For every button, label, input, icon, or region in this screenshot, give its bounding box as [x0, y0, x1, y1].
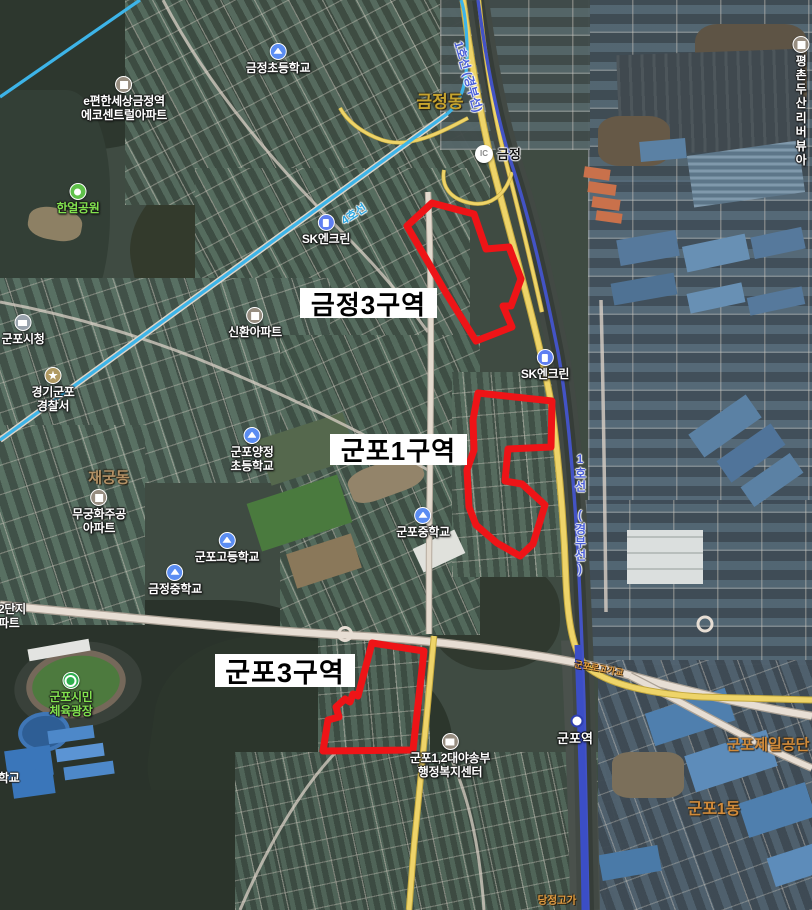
poi-label: 군포고등학교 — [195, 550, 259, 564]
gas-pump-icon[interactable] — [536, 349, 553, 366]
building-icon[interactable] — [115, 76, 132, 93]
poi-label: 군포시청 — [2, 332, 45, 346]
district-jaegungdong: 재궁동 — [88, 467, 129, 488]
poi-gunpo-highschool[interactable]: 군포고등학교 — [195, 532, 259, 564]
poi-pyeongchon-dusan-riverview[interactable]: 평촌두산 리버뷰아 — [793, 36, 810, 167]
school-icon[interactable] — [414, 507, 431, 524]
poi-sk-encrean-south[interactable]: SK엔크린 — [521, 349, 569, 381]
poi-gunpo-yangjeong-elementary[interactable]: 군포양정 초등학교 — [231, 427, 274, 473]
stadium-icon[interactable] — [63, 672, 80, 689]
poi-label: 군포1,2대야송부 행정복지센터 — [410, 751, 490, 779]
zone-label-gunpo1: 군포1구역 — [330, 434, 467, 465]
community-center-icon[interactable] — [441, 733, 458, 750]
district-geumjeongdong: 금정동 — [417, 88, 464, 113]
poi-epyeonhansesang-apartment[interactable]: e편한세상금정역 에코센트럴아파트 — [81, 76, 167, 122]
poi-label: SK엔크린 — [302, 232, 350, 246]
poi-label: 무궁화주공 아파트 — [72, 507, 126, 535]
school-icon[interactable] — [244, 427, 261, 444]
poi-gunpo-community-center[interactable]: 군포1,2대야송부 행정복지센터 — [410, 733, 490, 779]
poi-mugunghwa-jugong-apartment[interactable]: 무궁화주공 아파트 — [72, 489, 126, 535]
school-icon[interactable] — [269, 43, 286, 60]
poi-label: 금정초등학교 — [246, 61, 310, 75]
building-icon[interactable] — [793, 36, 810, 53]
poi-shinhwan-apartment[interactable]: 신환아파트 — [228, 307, 282, 339]
poi-gyeonggi-gunpo-police[interactable]: 경기군포 경찰서 — [32, 367, 75, 413]
poi-label: 군포중학교 — [396, 525, 450, 539]
poi-label: 신환아파트 — [228, 325, 282, 339]
street — [601, 300, 606, 612]
poi-label: SK엔크린 — [521, 367, 569, 381]
building-icon[interactable] — [90, 489, 107, 506]
interchange-geumjeong[interactable]: IC 금정 — [475, 144, 521, 163]
poi-label: e편한세상금정역 에코센트럴아파트 — [81, 94, 167, 122]
poi-label: 군포시민 체육광장 — [50, 690, 93, 718]
school-icon[interactable] — [166, 564, 183, 581]
interchange-name: 금정 — [497, 144, 521, 163]
poi-geumjeong-elementary[interactable]: 금정초등학교 — [246, 43, 310, 75]
poi-label: 한얼공원 — [57, 201, 100, 215]
poi-sk-encrean-north[interactable]: SK엔크린 — [302, 214, 350, 246]
gas-pump-icon[interactable] — [317, 214, 334, 231]
district-gunpo1dong: 군포1동 — [687, 795, 740, 819]
poi-gunpo-middle-school[interactable]: 군포중학교 — [396, 507, 450, 539]
poi-label: 금정중학교 — [148, 582, 202, 596]
red-zone-gunpo1 — [467, 393, 552, 556]
poi-gunpo-cityhall[interactable]: 군포시청 — [2, 314, 45, 346]
yellow-road-main-casing — [463, 0, 812, 700]
poi-label: 경기군포 경찰서 — [32, 385, 75, 413]
building-icon[interactable] — [246, 307, 263, 324]
roundabout — [698, 617, 712, 631]
poi-geumjeong-middle-school[interactable]: 금정중학교 — [148, 564, 202, 596]
map-canvas[interactable]: 금정3구역 군포1구역 군포3구역 금정초등학교 e편한세상금정역 에코센트럴아… — [0, 0, 812, 910]
station-label-gunpo[interactable]: 군포역 — [557, 728, 593, 747]
zone-label-gunpo3: 군포3구역 — [215, 654, 355, 687]
zone-label-geumjeong3: 금정3구역 — [300, 288, 437, 318]
poi-label: 군포양정 초등학교 — [231, 445, 274, 473]
yellow-road-main — [463, 0, 812, 700]
school-icon[interactable] — [218, 532, 235, 549]
interchange-icon: IC — [475, 145, 493, 163]
station-marker-gunpo[interactable] — [572, 716, 583, 727]
poi-gunpo-sports-plaza[interactable]: 군포시민 체육광장 — [50, 672, 93, 718]
poi-label: 평촌두산 리버뷰아 — [793, 54, 810, 167]
street — [240, 752, 336, 910]
government-building-icon[interactable] — [15, 314, 32, 331]
district-gunpo-jeil-industrial: 군포제일공단 — [727, 734, 810, 755]
police-badge-icon[interactable] — [45, 367, 62, 384]
bridge-label-dangjeong: 당정고가 — [538, 893, 577, 908]
tree-icon[interactable] — [70, 183, 87, 200]
line1-label-east: 1호선 (경부선) — [572, 452, 589, 577]
poi-haneol-park[interactable]: 한얼공원 — [57, 183, 100, 215]
edge-label-school: 학교 — [0, 771, 19, 785]
edge-label-danji-apartment: 2단지 파트 — [0, 602, 26, 631]
